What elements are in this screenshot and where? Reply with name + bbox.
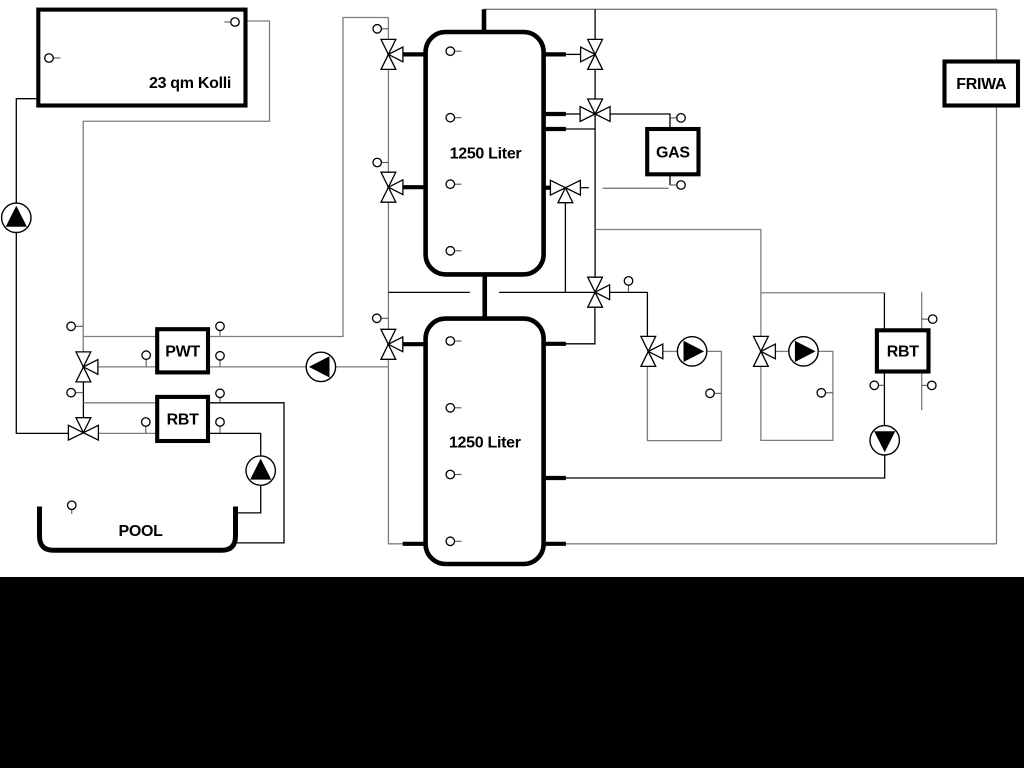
svg-text:23 qm Kolli: 23 qm Kolli xyxy=(149,75,231,92)
svg-text:RBT: RBT xyxy=(887,344,920,361)
svg-text:POOL: POOL xyxy=(119,523,164,540)
svg-text:FRIWA: FRIWA xyxy=(956,76,1007,93)
svg-text:1250 Liter: 1250 Liter xyxy=(449,435,521,452)
svg-text:GAS: GAS xyxy=(656,144,690,161)
svg-text:1250 Liter: 1250 Liter xyxy=(450,145,522,162)
svg-text:RBT: RBT xyxy=(167,412,200,429)
svg-text:PWT: PWT xyxy=(165,343,200,360)
